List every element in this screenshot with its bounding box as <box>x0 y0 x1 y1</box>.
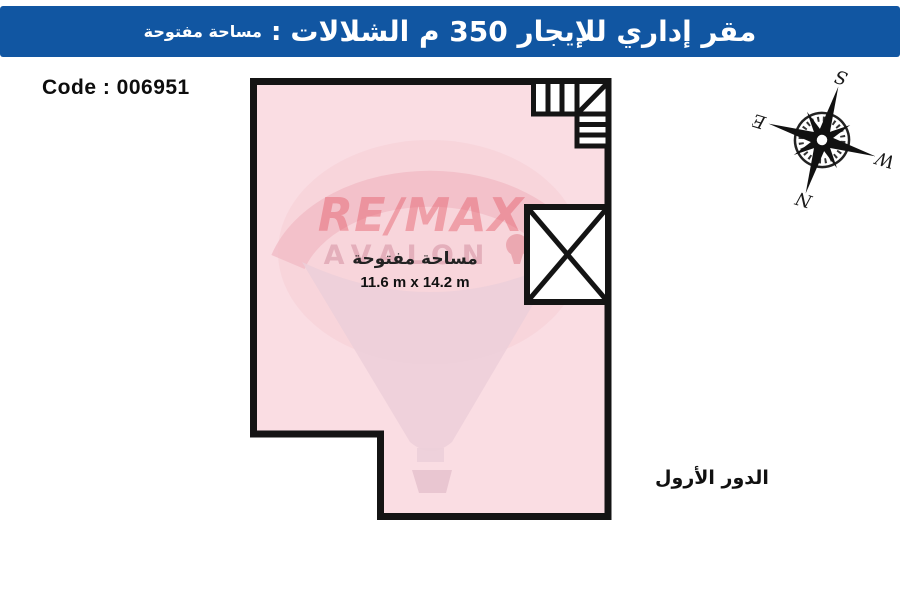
floorplan-page: مقر إداري للإيجار 350 م الشلالات : مساحة… <box>0 0 900 599</box>
balloon-neck <box>417 448 444 462</box>
balloon-basket <box>412 470 452 493</box>
area-dimensions: 11.6 m x 14.2 m <box>315 274 515 291</box>
floor-label: الدور الأرول <box>652 467 772 489</box>
area-label: مساحة مفتوحة <box>315 249 515 269</box>
compass-east-label: E <box>752 109 769 133</box>
compass-west-label: W <box>872 146 892 172</box>
compass-north-label: N <box>792 187 815 212</box>
watermark-remax-text: RE/MAX <box>318 188 526 242</box>
elevator-shaft <box>527 207 608 302</box>
area-label-block: مساحة مفتوحة 11.6 m x 14.2 m <box>315 249 515 291</box>
compass-south-label: S <box>832 65 850 89</box>
compass-rose: N S E W <box>752 62 892 218</box>
